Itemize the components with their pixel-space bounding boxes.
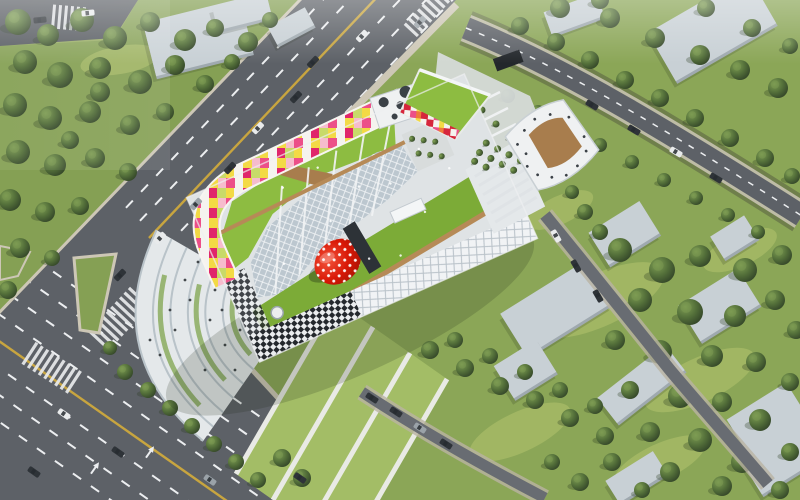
person bbox=[149, 339, 152, 342]
tree-cluster bbox=[0, 189, 21, 211]
person bbox=[159, 354, 162, 357]
haze-corner bbox=[0, 0, 170, 170]
person bbox=[189, 299, 192, 302]
person bbox=[174, 329, 177, 332]
rendering-canvas bbox=[0, 0, 800, 500]
person bbox=[169, 309, 172, 312]
person bbox=[214, 289, 217, 292]
person bbox=[221, 309, 224, 312]
person bbox=[184, 279, 187, 282]
person bbox=[209, 319, 212, 322]
person bbox=[197, 261, 200, 264]
aerial-render-image bbox=[0, 0, 800, 500]
